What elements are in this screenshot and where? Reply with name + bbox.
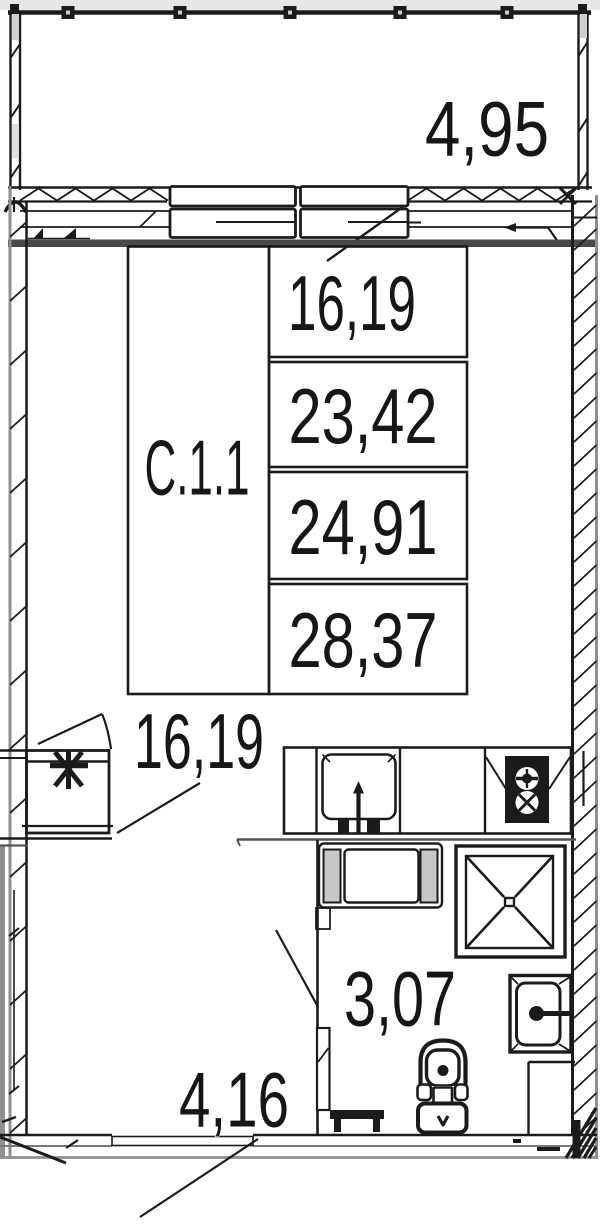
svg-text:16,19: 16,19 (134, 697, 264, 785)
svg-text:С.1.1: С.1.1 (145, 424, 250, 512)
svg-text:3,07: 3,07 (344, 955, 456, 1043)
svg-text:4,16: 4,16 (179, 1056, 289, 1144)
svg-text:4,95: 4,95 (425, 85, 549, 173)
svg-text:24,91: 24,91 (289, 483, 438, 571)
svg-text:28,37: 28,37 (289, 596, 438, 684)
svg-text:16,19: 16,19 (288, 259, 416, 347)
svg-text:23,42: 23,42 (289, 372, 438, 460)
